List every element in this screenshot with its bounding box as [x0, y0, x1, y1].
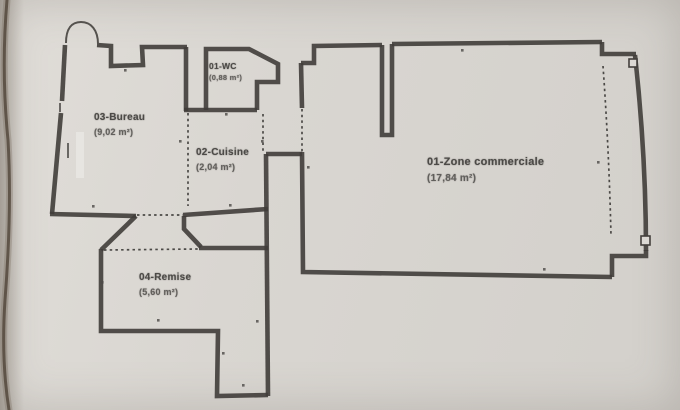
room-name-remise: 04-Remise [139, 272, 191, 284]
door-swing-arc [66, 22, 98, 44]
wall-bureau-left-upper [62, 45, 65, 101]
floorplan-drawing [0, 0, 680, 410]
room-area-bureau: (9,02 m²) [94, 127, 145, 137]
room-area-wc: (0,88 m²) [209, 74, 242, 83]
survey-marker-top [629, 59, 637, 67]
dotted-remise-top [104, 249, 198, 250]
scan-edge-streak [4, 0, 10, 410]
wall-cuisine-bottom [183, 209, 268, 215]
dotted-zone-storefront [603, 66, 611, 236]
walls-layer [50, 42, 646, 396]
room-name-cuisine: 02-Cuisine [196, 147, 249, 159]
wall-zone-top-right [392, 42, 602, 44]
wall-remise-right [266, 154, 268, 396]
wall-passage-splay-right [184, 216, 201, 247]
room-label-wc: 01-WC (0,88 m²) [209, 62, 242, 82]
wall-zone-bottomright-step [612, 250, 646, 277]
wall-bureau-left-lower [52, 113, 61, 214]
room-name-wc: 01-WC [209, 62, 242, 72]
room-name-bureau: 03-Bureau [94, 112, 145, 124]
room-label-bureau: 03-Bureau (9,02 m²) [94, 112, 145, 137]
room-area-zone-commerciale: (17,84 m²) [427, 173, 544, 185]
wall-bureau-bottom [50, 214, 136, 216]
floorplan-photo: 03-Bureau (9,02 m²) 01-WC (0,88 m²) 02-C… [0, 0, 680, 410]
wall-zone-slot [382, 44, 392, 135]
room-label-cuisine: 02-Cuisine (2,04 m²) [196, 147, 249, 172]
wall-bureau-top-notch [97, 45, 187, 66]
wall-zone-right [635, 55, 646, 251]
wall-zone-top-left [301, 45, 382, 63]
room-label-remise: 04-Remise (5,60 m²) [139, 272, 191, 297]
wall-passage-splay-left [101, 216, 136, 250]
wall-zone-topright-step [602, 42, 636, 54]
paper-white-patch [76, 132, 84, 178]
room-name-zone-commerciale: 01-Zone commerciale [427, 156, 544, 169]
survey-marker-bottom [641, 236, 650, 245]
wall-zone-left-upper [301, 63, 302, 108]
room-label-zone-commerciale: 01-Zone commerciale (17,84 m²) [427, 156, 544, 184]
room-area-remise: (5,60 m²) [139, 287, 191, 297]
dimension-specks [92, 49, 600, 387]
room-area-cuisine: (2,04 m²) [196, 162, 249, 172]
